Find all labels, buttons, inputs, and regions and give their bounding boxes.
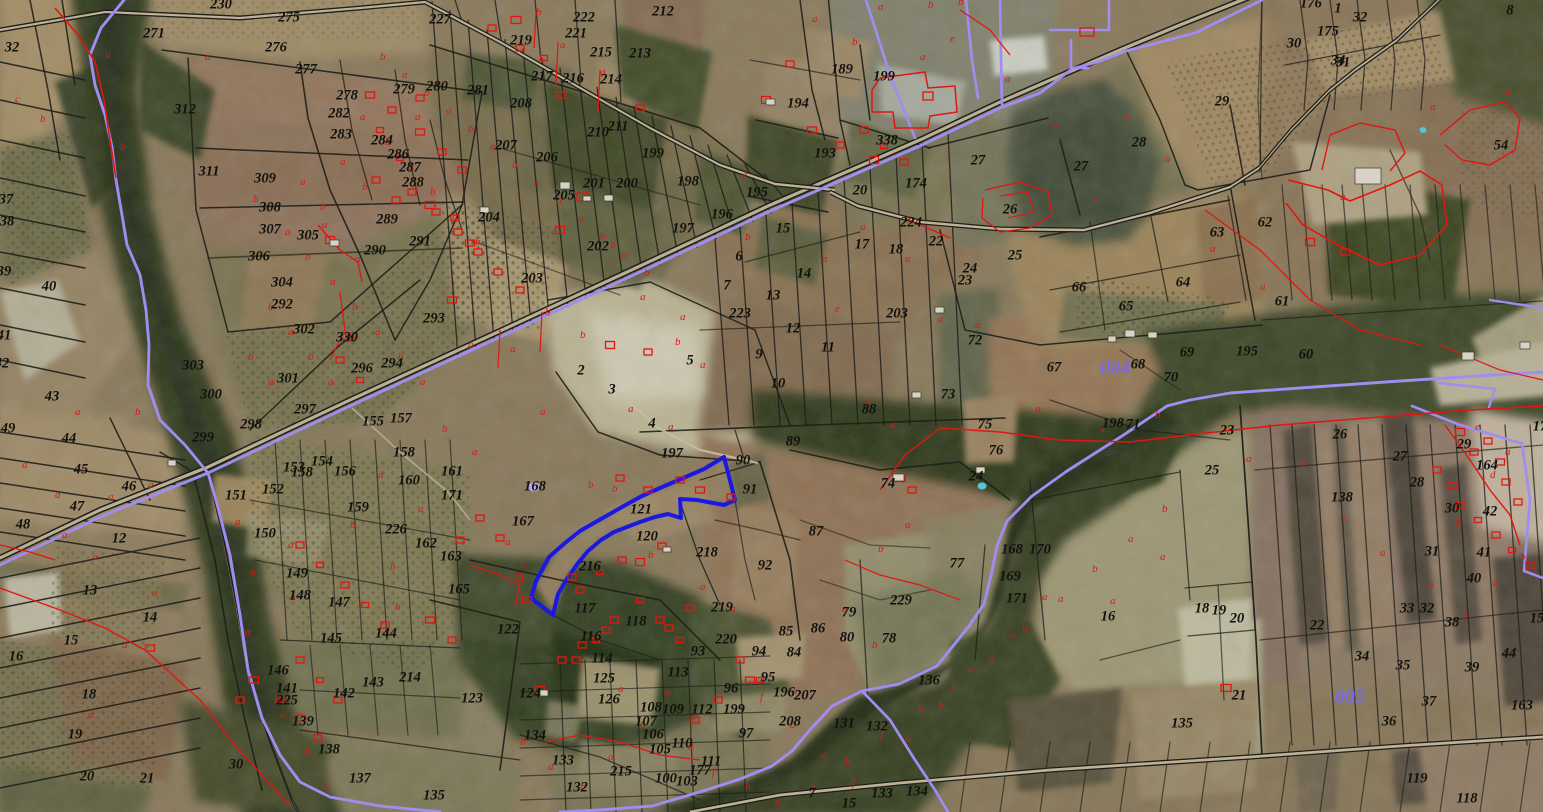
svg-text:d: d bbox=[1455, 516, 1461, 528]
svg-text:133: 133 bbox=[552, 753, 574, 769]
svg-text:18: 18 bbox=[889, 242, 904, 258]
svg-text:63: 63 bbox=[1210, 225, 1225, 241]
svg-text:15: 15 bbox=[842, 796, 857, 812]
svg-text:198: 198 bbox=[677, 174, 700, 190]
svg-text:162: 162 bbox=[415, 536, 437, 552]
svg-text:12: 12 bbox=[112, 531, 127, 547]
svg-text:b: b bbox=[308, 351, 314, 363]
svg-text:23: 23 bbox=[1219, 423, 1235, 439]
svg-text:a: a bbox=[968, 663, 974, 675]
svg-text:b: b bbox=[845, 756, 851, 768]
svg-text:36: 36 bbox=[1381, 714, 1397, 730]
svg-text:136: 136 bbox=[918, 673, 941, 689]
svg-text:a: a bbox=[280, 709, 286, 721]
svg-text:116: 116 bbox=[581, 629, 603, 645]
svg-text:303: 303 bbox=[181, 358, 204, 374]
svg-text:207: 207 bbox=[793, 688, 817, 704]
svg-text:27: 27 bbox=[1073, 159, 1089, 175]
svg-text:b: b bbox=[872, 639, 878, 651]
svg-text:75: 75 bbox=[978, 417, 993, 433]
svg-text:b: b bbox=[852, 36, 858, 48]
svg-text:b: b bbox=[512, 159, 518, 171]
svg-text:118: 118 bbox=[626, 614, 648, 630]
svg-text:a: a bbox=[1165, 153, 1171, 165]
svg-text:69: 69 bbox=[1180, 345, 1195, 361]
svg-text:b: b bbox=[1022, 623, 1028, 635]
svg-text:e: e bbox=[950, 33, 955, 45]
svg-text:a: a bbox=[285, 226, 291, 238]
svg-text:b: b bbox=[352, 301, 358, 313]
svg-text:307: 307 bbox=[258, 222, 282, 238]
svg-text:117: 117 bbox=[575, 601, 597, 617]
svg-text:a: a bbox=[1035, 403, 1041, 415]
svg-text:118: 118 bbox=[1457, 791, 1479, 807]
svg-text:86: 86 bbox=[811, 621, 826, 637]
svg-text:a: a bbox=[1110, 595, 1116, 607]
svg-text:b: b bbox=[468, 123, 474, 135]
svg-text:174: 174 bbox=[905, 176, 927, 192]
svg-text:b: b bbox=[380, 51, 386, 63]
svg-text:a: a bbox=[905, 733, 911, 745]
svg-text:271: 271 bbox=[142, 26, 165, 42]
svg-text:280: 280 bbox=[425, 79, 448, 95]
svg-text:147: 147 bbox=[328, 595, 351, 611]
svg-text:a: a bbox=[665, 686, 671, 698]
svg-text:a: a bbox=[938, 313, 944, 325]
svg-text:218: 218 bbox=[695, 545, 719, 561]
svg-text:42: 42 bbox=[0, 356, 9, 372]
svg-text:221: 221 bbox=[564, 26, 587, 42]
svg-text:304: 304 bbox=[270, 275, 293, 291]
svg-text:a: a bbox=[328, 376, 334, 388]
svg-text:15: 15 bbox=[776, 221, 791, 237]
svg-text:278: 278 bbox=[335, 88, 359, 104]
svg-text:a: a bbox=[822, 253, 828, 265]
svg-text:a: a bbox=[205, 51, 211, 63]
svg-text:206: 206 bbox=[535, 150, 559, 166]
svg-text:38: 38 bbox=[1444, 615, 1460, 631]
svg-text:150: 150 bbox=[254, 526, 276, 542]
svg-text:a: a bbox=[420, 376, 426, 388]
svg-text:112: 112 bbox=[692, 702, 713, 718]
svg-text:169: 169 bbox=[999, 569, 1021, 585]
svg-text:b: b bbox=[878, 543, 884, 555]
svg-text:17: 17 bbox=[1533, 419, 1543, 435]
svg-text:a: a bbox=[742, 169, 748, 181]
svg-text:194: 194 bbox=[787, 96, 809, 112]
svg-text:108: 108 bbox=[640, 700, 663, 716]
svg-text:b: b bbox=[253, 193, 259, 205]
svg-text:30: 30 bbox=[1444, 501, 1460, 517]
svg-text:a: a bbox=[245, 626, 251, 638]
svg-text:16: 16 bbox=[9, 649, 24, 665]
svg-text:39: 39 bbox=[0, 264, 11, 280]
svg-text:146: 146 bbox=[267, 663, 290, 679]
svg-text:13: 13 bbox=[83, 583, 98, 599]
svg-text:216: 216 bbox=[561, 71, 585, 87]
svg-text:155: 155 bbox=[362, 414, 384, 430]
svg-text:26: 26 bbox=[1002, 202, 1018, 218]
svg-text:a: a bbox=[680, 311, 686, 323]
svg-text:196: 196 bbox=[773, 685, 796, 701]
svg-text:143: 143 bbox=[362, 675, 384, 691]
svg-text:b: b bbox=[40, 113, 46, 125]
svg-text:12: 12 bbox=[786, 321, 801, 337]
svg-text:b: b bbox=[390, 561, 396, 573]
svg-text:124: 124 bbox=[519, 686, 541, 702]
svg-text:216: 216 bbox=[578, 559, 602, 575]
svg-text:b: b bbox=[675, 336, 681, 348]
svg-text:b: b bbox=[248, 351, 254, 363]
svg-text:171: 171 bbox=[1006, 591, 1028, 607]
svg-text:32: 32 bbox=[4, 40, 20, 56]
svg-text:a: a bbox=[322, 219, 328, 231]
svg-text:91: 91 bbox=[743, 482, 758, 498]
svg-text:224: 224 bbox=[899, 215, 922, 231]
svg-text:42: 42 bbox=[1482, 504, 1498, 520]
svg-text:10: 10 bbox=[771, 376, 786, 392]
svg-text:a: a bbox=[105, 49, 111, 61]
svg-text:20: 20 bbox=[852, 183, 868, 199]
svg-text:a: a bbox=[820, 749, 826, 761]
svg-text:87: 87 bbox=[809, 524, 824, 540]
svg-text:296: 296 bbox=[350, 361, 374, 377]
svg-text:207: 207 bbox=[494, 138, 518, 154]
svg-text:39: 39 bbox=[1464, 660, 1480, 676]
svg-text:5: 5 bbox=[686, 353, 693, 369]
svg-text:a: a bbox=[148, 479, 154, 491]
svg-text:197: 197 bbox=[672, 221, 695, 237]
svg-text:a: a bbox=[88, 709, 94, 721]
svg-text:b: b bbox=[430, 186, 436, 198]
svg-text:214: 214 bbox=[599, 72, 622, 88]
svg-text:212: 212 bbox=[651, 4, 674, 20]
svg-text:b: b bbox=[1125, 111, 1131, 123]
svg-text:a: a bbox=[628, 403, 634, 415]
svg-text:a: a bbox=[1042, 591, 1048, 603]
svg-text:a: a bbox=[152, 587, 158, 599]
svg-text:b: b bbox=[644, 267, 650, 279]
svg-text:167: 167 bbox=[512, 514, 535, 530]
svg-text:a: a bbox=[860, 221, 866, 233]
svg-text:76: 76 bbox=[989, 443, 1004, 459]
svg-text:a: a bbox=[418, 503, 424, 515]
svg-text:b: b bbox=[362, 181, 368, 193]
svg-text:160: 160 bbox=[398, 473, 420, 489]
svg-text:25: 25 bbox=[1007, 248, 1023, 264]
svg-text:a: a bbox=[375, 326, 381, 338]
svg-text:a: a bbox=[1128, 533, 1134, 545]
svg-text:137: 137 bbox=[349, 771, 372, 787]
svg-text:27: 27 bbox=[970, 153, 986, 169]
svg-text:158: 158 bbox=[393, 445, 416, 461]
svg-text:103: 103 bbox=[676, 774, 698, 790]
svg-text:281: 281 bbox=[466, 83, 489, 99]
svg-text:16: 16 bbox=[1101, 609, 1116, 625]
svg-text:95: 95 bbox=[761, 670, 776, 686]
svg-text:b: b bbox=[958, 0, 964, 8]
svg-text:b: b bbox=[442, 423, 448, 435]
svg-text:193: 193 bbox=[814, 146, 836, 162]
svg-text:309: 309 bbox=[253, 171, 276, 187]
svg-text:73: 73 bbox=[941, 387, 956, 403]
svg-text:175: 175 bbox=[1317, 24, 1339, 40]
svg-text:d: d bbox=[1492, 577, 1498, 589]
svg-text:30: 30 bbox=[1286, 36, 1302, 52]
svg-text:144: 144 bbox=[375, 626, 397, 642]
svg-text:24: 24 bbox=[962, 261, 978, 277]
svg-text:201: 201 bbox=[582, 176, 605, 192]
svg-text:40: 40 bbox=[41, 279, 57, 295]
svg-text:90: 90 bbox=[736, 453, 751, 469]
svg-text:89: 89 bbox=[786, 434, 801, 450]
svg-text:277: 277 bbox=[294, 62, 318, 78]
svg-text:66: 66 bbox=[1072, 280, 1087, 296]
svg-text:29: 29 bbox=[1214, 94, 1230, 110]
svg-text:311: 311 bbox=[198, 164, 220, 180]
svg-text:275: 275 bbox=[277, 10, 300, 26]
svg-text:70: 70 bbox=[1164, 370, 1179, 386]
svg-text:a: a bbox=[578, 213, 584, 225]
svg-text:b: b bbox=[1520, 551, 1526, 563]
svg-text:46: 46 bbox=[121, 479, 137, 495]
svg-text:110: 110 bbox=[672, 736, 693, 752]
svg-text:222: 222 bbox=[572, 10, 595, 26]
svg-text:109: 109 bbox=[662, 702, 684, 718]
svg-text:2: 2 bbox=[576, 363, 584, 379]
svg-text:22: 22 bbox=[1309, 618, 1325, 634]
svg-text:a: a bbox=[1340, 191, 1346, 203]
svg-text:199: 199 bbox=[873, 69, 895, 85]
svg-text:189: 189 bbox=[831, 62, 853, 78]
svg-text:197: 197 bbox=[661, 446, 684, 462]
svg-text:215: 215 bbox=[589, 45, 612, 61]
svg-text:21: 21 bbox=[139, 771, 155, 787]
svg-text:a: a bbox=[415, 111, 421, 123]
svg-text:45: 45 bbox=[73, 462, 89, 478]
svg-text:a: a bbox=[1505, 86, 1511, 98]
svg-text:203: 203 bbox=[885, 306, 908, 322]
svg-text:a: a bbox=[92, 551, 98, 563]
svg-text:a: a bbox=[235, 516, 241, 528]
svg-text:a: a bbox=[340, 156, 346, 168]
svg-text:200: 200 bbox=[615, 176, 638, 192]
svg-text:a: a bbox=[975, 319, 981, 331]
svg-text:b: b bbox=[1162, 503, 1168, 515]
svg-text:226: 226 bbox=[384, 522, 408, 538]
svg-text:306: 306 bbox=[247, 249, 271, 265]
svg-text:213: 213 bbox=[628, 46, 651, 62]
svg-text:293: 293 bbox=[422, 311, 445, 327]
svg-text:196: 196 bbox=[711, 207, 734, 223]
svg-text:199: 199 bbox=[723, 702, 745, 718]
svg-text:a: a bbox=[505, 536, 511, 548]
svg-text:a: a bbox=[534, 177, 540, 189]
svg-text:308: 308 bbox=[258, 200, 282, 216]
svg-text:54: 54 bbox=[1494, 138, 1509, 154]
svg-text:a: a bbox=[1210, 243, 1216, 255]
svg-text:29: 29 bbox=[1456, 437, 1472, 453]
svg-text:139: 139 bbox=[292, 714, 314, 730]
svg-text:148: 148 bbox=[289, 588, 312, 604]
svg-text:a: a bbox=[700, 581, 706, 593]
svg-text:33: 33 bbox=[1399, 601, 1415, 617]
svg-text:135: 135 bbox=[423, 788, 445, 804]
svg-text:a: a bbox=[878, 1, 884, 13]
svg-text:92: 92 bbox=[758, 558, 773, 574]
svg-text:21: 21 bbox=[1231, 688, 1247, 704]
svg-text:282: 282 bbox=[327, 106, 350, 122]
svg-text:107: 107 bbox=[635, 714, 658, 730]
svg-text:17: 17 bbox=[855, 237, 870, 253]
svg-text:11: 11 bbox=[821, 340, 835, 356]
svg-text:22: 22 bbox=[928, 234, 944, 250]
svg-text:290: 290 bbox=[363, 243, 386, 259]
svg-text:37: 37 bbox=[1421, 694, 1437, 710]
svg-text:294: 294 bbox=[380, 356, 403, 372]
svg-text:292: 292 bbox=[270, 297, 293, 313]
svg-text:168: 168 bbox=[524, 479, 547, 495]
svg-text:a: a bbox=[300, 176, 306, 188]
svg-text:31: 31 bbox=[1424, 544, 1440, 560]
svg-text:276: 276 bbox=[264, 40, 288, 56]
svg-text:113: 113 bbox=[668, 665, 689, 681]
svg-text:44: 44 bbox=[1501, 646, 1517, 662]
svg-text:134: 134 bbox=[906, 784, 928, 800]
svg-text:27: 27 bbox=[1392, 449, 1408, 465]
svg-text:a: a bbox=[608, 751, 614, 763]
svg-text:a: a bbox=[890, 419, 896, 431]
svg-text:210: 210 bbox=[586, 125, 609, 141]
svg-text:288: 288 bbox=[401, 175, 425, 191]
svg-text:20: 20 bbox=[1229, 611, 1245, 627]
svg-text:97: 97 bbox=[739, 726, 754, 742]
svg-text:121: 121 bbox=[630, 502, 652, 518]
svg-text:b: b bbox=[612, 483, 618, 495]
svg-text:32: 32 bbox=[1419, 601, 1435, 617]
svg-text:134: 134 bbox=[524, 728, 546, 744]
svg-text:19: 19 bbox=[1212, 603, 1227, 619]
svg-text:168: 168 bbox=[1001, 542, 1024, 558]
svg-text:005: 005 bbox=[1335, 686, 1365, 708]
svg-text:30: 30 bbox=[228, 757, 244, 773]
svg-text:a: a bbox=[75, 406, 81, 418]
svg-text:132: 132 bbox=[566, 780, 588, 796]
svg-text:28: 28 bbox=[1131, 135, 1147, 151]
svg-text:15: 15 bbox=[64, 633, 79, 649]
svg-text:a: a bbox=[510, 343, 516, 355]
svg-text:c: c bbox=[15, 93, 20, 105]
svg-text:a: a bbox=[122, 639, 128, 651]
svg-text:61: 61 bbox=[1275, 294, 1290, 310]
svg-text:114: 114 bbox=[592, 651, 613, 667]
svg-text:202: 202 bbox=[586, 239, 609, 255]
svg-text:298: 298 bbox=[239, 417, 263, 433]
svg-text:a: a bbox=[1430, 101, 1436, 113]
svg-text:229: 229 bbox=[889, 593, 912, 609]
svg-text:283: 283 bbox=[329, 127, 352, 143]
svg-text:48: 48 bbox=[15, 517, 31, 533]
svg-text:72: 72 bbox=[968, 333, 983, 349]
svg-text:13: 13 bbox=[766, 288, 781, 304]
svg-text:44: 44 bbox=[61, 431, 77, 447]
svg-text:38: 38 bbox=[0, 214, 15, 230]
svg-text:195: 195 bbox=[746, 185, 768, 201]
svg-text:a: a bbox=[905, 253, 911, 265]
svg-text:26: 26 bbox=[1332, 427, 1348, 443]
svg-text:199: 199 bbox=[642, 146, 664, 162]
svg-text:35: 35 bbox=[1395, 658, 1411, 674]
svg-text:14: 14 bbox=[143, 610, 158, 626]
svg-text:131: 131 bbox=[833, 716, 855, 732]
svg-text:b: b bbox=[305, 251, 311, 263]
svg-text:a: a bbox=[250, 566, 256, 578]
svg-text:a: a bbox=[1300, 457, 1306, 469]
svg-text:74: 74 bbox=[881, 476, 896, 492]
svg-text:230: 230 bbox=[209, 0, 232, 13]
svg-text:195: 195 bbox=[1236, 344, 1258, 360]
svg-text:24: 24 bbox=[968, 469, 984, 485]
svg-text:a: a bbox=[988, 653, 994, 665]
svg-text:a: a bbox=[812, 13, 818, 25]
svg-text:170: 170 bbox=[1029, 542, 1051, 558]
svg-text:18: 18 bbox=[1195, 601, 1210, 617]
svg-text:b: b bbox=[350, 519, 356, 531]
svg-text:a: a bbox=[472, 446, 478, 458]
svg-text:37: 37 bbox=[0, 192, 14, 208]
svg-text:a: a bbox=[55, 489, 61, 501]
svg-text:a: a bbox=[1380, 547, 1386, 559]
svg-text:161: 161 bbox=[441, 464, 463, 480]
svg-text:142: 142 bbox=[333, 686, 355, 702]
svg-text:297: 297 bbox=[293, 402, 317, 418]
svg-text:68: 68 bbox=[1131, 357, 1146, 373]
svg-text:b: b bbox=[320, 201, 326, 213]
svg-text:b: b bbox=[648, 549, 654, 561]
svg-text:20: 20 bbox=[79, 769, 95, 785]
svg-text:a: a bbox=[1010, 629, 1016, 641]
svg-text:299: 299 bbox=[191, 430, 214, 446]
svg-text:205: 205 bbox=[552, 188, 575, 204]
svg-text:152: 152 bbox=[262, 482, 284, 498]
svg-text:198: 198 bbox=[1102, 416, 1125, 432]
svg-text:a: a bbox=[355, 253, 361, 265]
svg-text:a: a bbox=[1058, 593, 1064, 605]
svg-text:225: 225 bbox=[275, 693, 298, 709]
svg-text:84: 84 bbox=[787, 645, 802, 661]
svg-text:301: 301 bbox=[276, 371, 299, 387]
svg-text:77: 77 bbox=[950, 556, 965, 572]
svg-text:219: 219 bbox=[710, 600, 733, 616]
svg-text:b: b bbox=[588, 479, 594, 491]
svg-text:a: a bbox=[108, 491, 114, 503]
svg-text:1: 1 bbox=[1334, 1, 1341, 17]
svg-text:b: b bbox=[745, 781, 751, 793]
svg-text:25: 25 bbox=[1204, 463, 1220, 479]
svg-text:b: b bbox=[536, 6, 542, 18]
svg-text:219: 219 bbox=[509, 33, 532, 49]
svg-text:312: 312 bbox=[173, 102, 196, 118]
svg-text:7: 7 bbox=[723, 278, 731, 294]
svg-text:a: a bbox=[1052, 119, 1058, 131]
svg-text:65: 65 bbox=[1119, 299, 1134, 315]
svg-text:330: 330 bbox=[335, 330, 358, 346]
svg-text:138: 138 bbox=[1331, 490, 1354, 506]
svg-text:302: 302 bbox=[292, 322, 315, 338]
svg-text:a: a bbox=[1160, 551, 1166, 563]
svg-text:15: 15 bbox=[1530, 611, 1543, 627]
svg-text:b: b bbox=[918, 703, 924, 715]
